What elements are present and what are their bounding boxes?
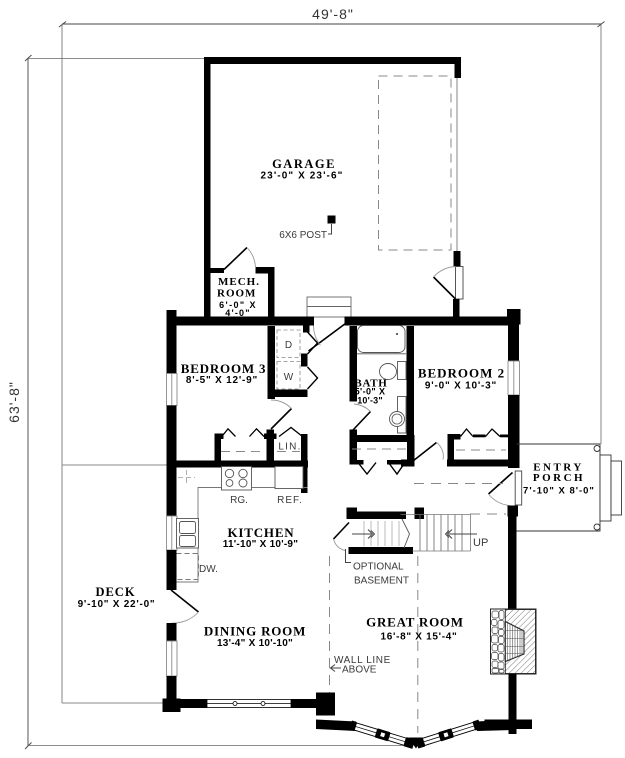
svg-text:9'-0" X 10'-3": 9'-0" X 10'-3" [425,381,497,392]
svg-text:9'-10" X 22'-0": 9'-10" X 22'-0" [78,599,156,610]
svg-text:BEDROOM 2: BEDROOM 2 [418,366,505,381]
svg-text:D: D [285,340,292,351]
svg-text:REF.: REF. [277,495,303,506]
svg-text:LIN.: LIN. [278,442,301,453]
svg-text:GARAGE: GARAGE [272,157,336,171]
svg-text:13'-4" X 10'-10": 13'-4" X 10'-10" [217,638,293,649]
svg-text:DINING ROOM: DINING ROOM [204,624,306,639]
svg-text:49'-8": 49'-8" [312,6,354,22]
svg-text:7'-10" X 8'-0": 7'-10" X 8'-0" [523,486,595,497]
svg-text:63'-8": 63'-8" [6,381,22,423]
svg-text:UP: UP [473,537,488,549]
svg-text:11'-10" X 10'-9": 11'-10" X 10'-9" [223,539,299,550]
svg-text:W: W [284,372,294,383]
svg-text:PORCH: PORCH [533,472,585,484]
svg-text:KITCHEN: KITCHEN [227,525,294,540]
svg-text:ABOVE: ABOVE [342,665,377,676]
svg-text:23'-0" X 23'-6": 23'-0" X 23'-6" [261,171,344,182]
svg-text:10'-3": 10'-3" [357,396,383,406]
svg-text:8'-5" X 12'-9": 8'-5" X 12'-9" [186,375,258,386]
svg-text:DECK: DECK [95,585,135,599]
svg-text:16'-8" X 15'-4": 16'-8" X 15'-4" [381,632,458,643]
svg-text:DW.: DW. [199,564,218,575]
svg-text:ROOM: ROOM [217,288,256,300]
svg-text:MECH.: MECH. [218,276,260,288]
svg-text:BASEMENT: BASEMENT [354,576,409,587]
svg-text:GREAT ROOM: GREAT ROOM [366,615,464,630]
svg-text:OPTIONAL: OPTIONAL [353,562,404,573]
svg-text:6X6 POST: 6X6 POST [279,230,327,241]
svg-text:RG.: RG. [230,495,248,506]
svg-text:BEDROOM 3: BEDROOM 3 [181,361,267,376]
